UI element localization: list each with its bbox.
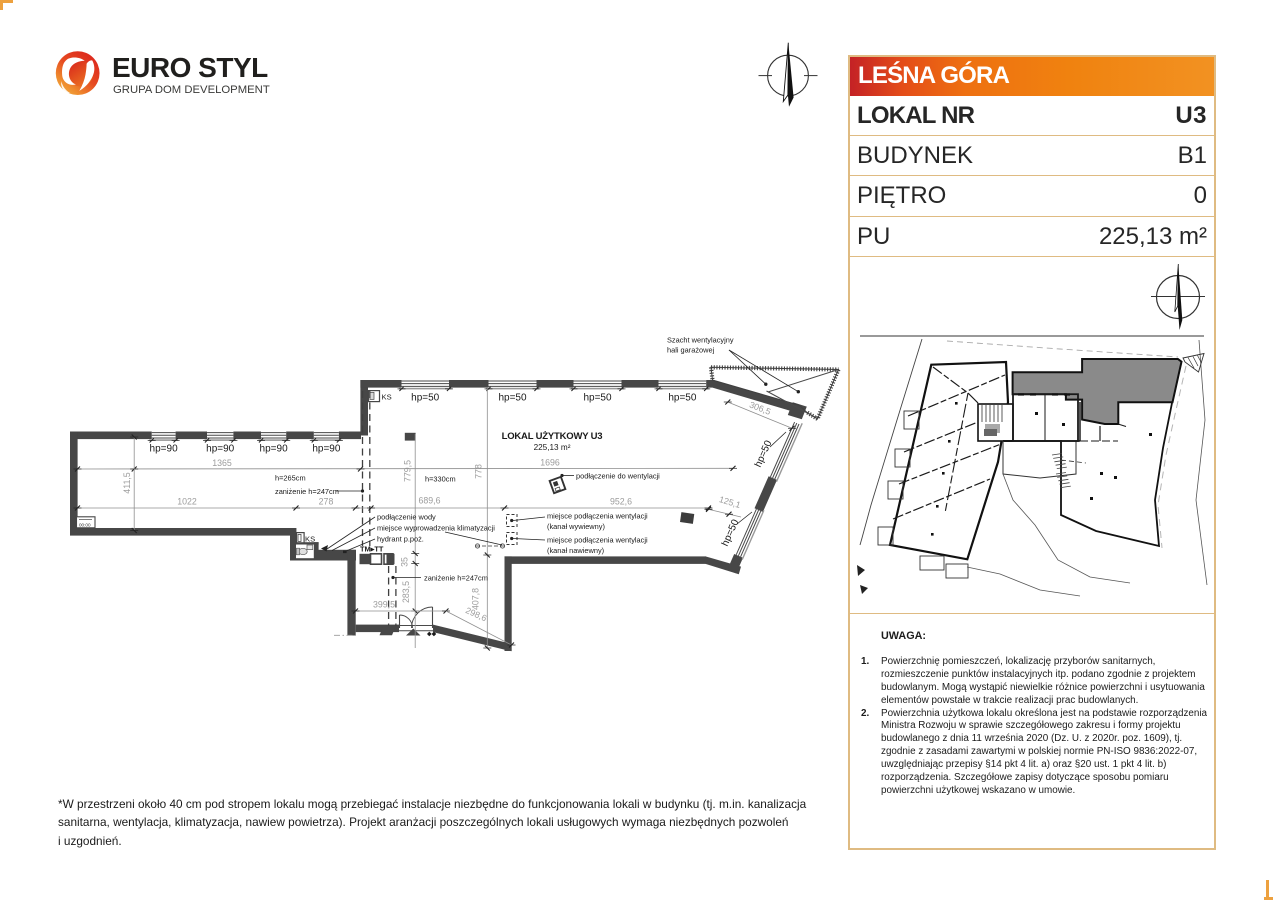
svg-text:hp=50: hp=50 [411, 393, 440, 404]
svg-text:TM▸TT: TM▸TT [360, 545, 384, 554]
svg-text:podłączenie do wentylacji: podłączenie do wentylacji [576, 472, 660, 481]
svg-text:411,5: 411,5 [122, 472, 132, 493]
svg-text:zaniżenie h=247cm: zaniżenie h=247cm [275, 487, 339, 496]
svg-text:podłączenie wody: podłączenie wody [377, 513, 436, 522]
svg-text:(kanał wywiewny): (kanał wywiewny) [547, 522, 605, 531]
svg-text:hp=90: hp=90 [312, 444, 341, 455]
svg-text:298,6: 298,6 [464, 605, 488, 623]
svg-text:KS: KS [305, 535, 315, 544]
svg-text:hp=50: hp=50 [668, 393, 697, 404]
svg-text:(kanał nawiewny): (kanał nawiewny) [547, 546, 604, 555]
svg-text:35: 35 [400, 557, 410, 567]
svg-text:hydrant p.poż.: hydrant p.poż. [377, 535, 424, 544]
svg-text:779,5: 779,5 [403, 460, 413, 482]
svg-text:hp=50: hp=50 [720, 518, 742, 549]
svg-text:225,13 m²: 225,13 m² [534, 443, 571, 452]
svg-text:hp=50: hp=50 [498, 393, 527, 404]
svg-text:00:00: 00:00 [79, 523, 91, 528]
svg-text:278: 278 [319, 497, 334, 507]
svg-text:hp=90: hp=90 [206, 444, 235, 455]
svg-text:KS: KS [382, 393, 392, 402]
svg-text:LOKAL UŻYTKOWY U3: LOKAL UŻYTKOWY U3 [502, 431, 603, 442]
svg-text:hp=90: hp=90 [260, 444, 289, 455]
svg-text:hp=50: hp=50 [753, 439, 775, 470]
svg-text:1365: 1365 [212, 458, 232, 468]
svg-text:125,1: 125,1 [718, 494, 742, 510]
svg-text:952,6: 952,6 [610, 497, 632, 507]
svg-text:h=265cm: h=265cm [275, 474, 306, 483]
svg-text:h=330cm: h=330cm [425, 475, 456, 484]
svg-text:778: 778 [474, 464, 484, 479]
svg-text:1022: 1022 [177, 497, 197, 507]
svg-text:1696: 1696 [540, 458, 560, 468]
svg-text:hp=90: hp=90 [150, 444, 179, 455]
svg-text:Szacht wentylacyjny: Szacht wentylacyjny [667, 336, 734, 345]
svg-text:689,6: 689,6 [418, 496, 440, 506]
svg-text:hali garażowej: hali garażowej [667, 346, 715, 355]
svg-text:zaniżenie h=247cm: zaniżenie h=247cm [424, 574, 488, 583]
svg-text:miejsce wyprowadzenia klimatyz: miejsce wyprowadzenia klimatyzacji [377, 524, 495, 533]
svg-text:399,5: 399,5 [373, 600, 395, 610]
svg-text:miejsce podłączenia wentylacji: miejsce podłączenia wentylacji [547, 536, 648, 545]
svg-text:miejsce podłączenia wentylacji: miejsce podłączenia wentylacji [547, 512, 648, 521]
svg-text:hp=50: hp=50 [583, 393, 612, 404]
svg-text:283,5: 283,5 [401, 581, 411, 603]
